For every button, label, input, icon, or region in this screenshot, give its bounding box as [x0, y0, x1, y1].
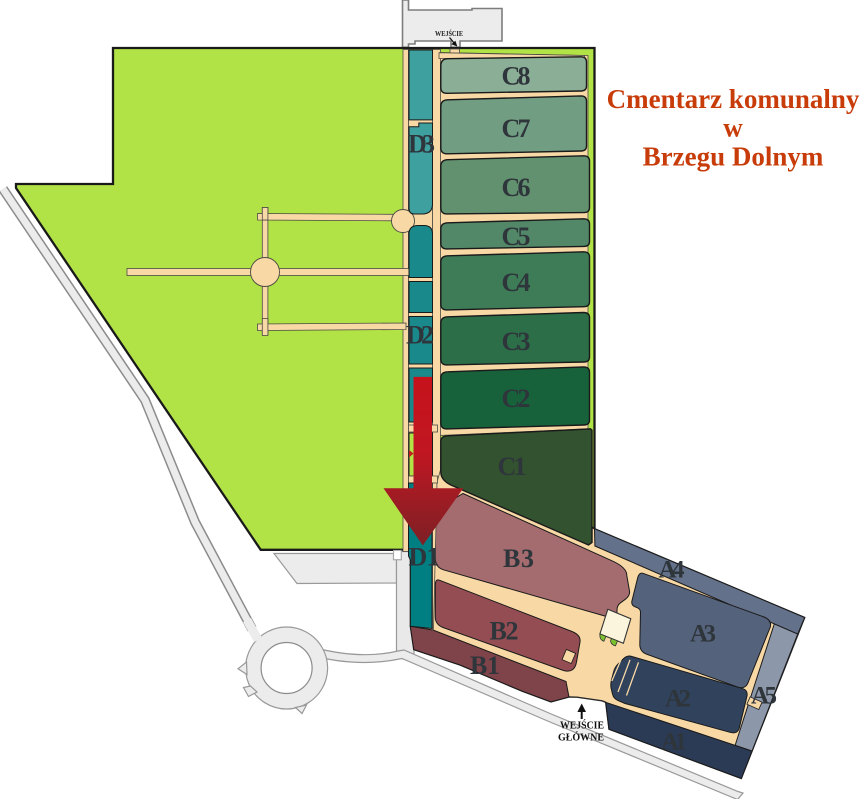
svg-text:B2: B2 — [490, 617, 519, 646]
svg-text:Cmentarz komunalny: Cmentarz komunalny — [607, 84, 860, 114]
svg-text:A3: A3 — [690, 621, 716, 648]
svg-text:B1: B1 — [470, 651, 500, 680]
svg-text:C3: C3 — [502, 327, 531, 356]
svg-text:A4: A4 — [659, 557, 686, 584]
svg-text:w: w — [723, 113, 743, 143]
svg-text:A2: A2 — [665, 686, 691, 713]
svg-text:C7: C7 — [502, 114, 531, 143]
svg-text:Brzegu Dolnym: Brzegu Dolnym — [643, 142, 824, 172]
svg-text:GŁÓWNE: GŁÓWNE — [558, 732, 604, 744]
svg-text:A1: A1 — [661, 729, 687, 756]
svg-text:WEJŚCIE: WEJŚCIE — [435, 28, 463, 38]
svg-text:C5: C5 — [502, 222, 531, 251]
svg-text:B3: B3 — [503, 544, 534, 573]
svg-text:C2: C2 — [502, 384, 531, 413]
svg-text:WEJŚCIE: WEJŚCIE — [560, 719, 604, 731]
svg-text:A5: A5 — [751, 683, 777, 710]
svg-text:D3: D3 — [408, 130, 435, 159]
svg-text:C1: C1 — [498, 452, 527, 481]
svg-text:D2: D2 — [406, 321, 434, 350]
svg-text:D1: D1 — [409, 543, 440, 572]
svg-text:C8: C8 — [502, 62, 531, 91]
svg-text:C6: C6 — [502, 173, 531, 202]
svg-text:C4: C4 — [502, 268, 531, 297]
